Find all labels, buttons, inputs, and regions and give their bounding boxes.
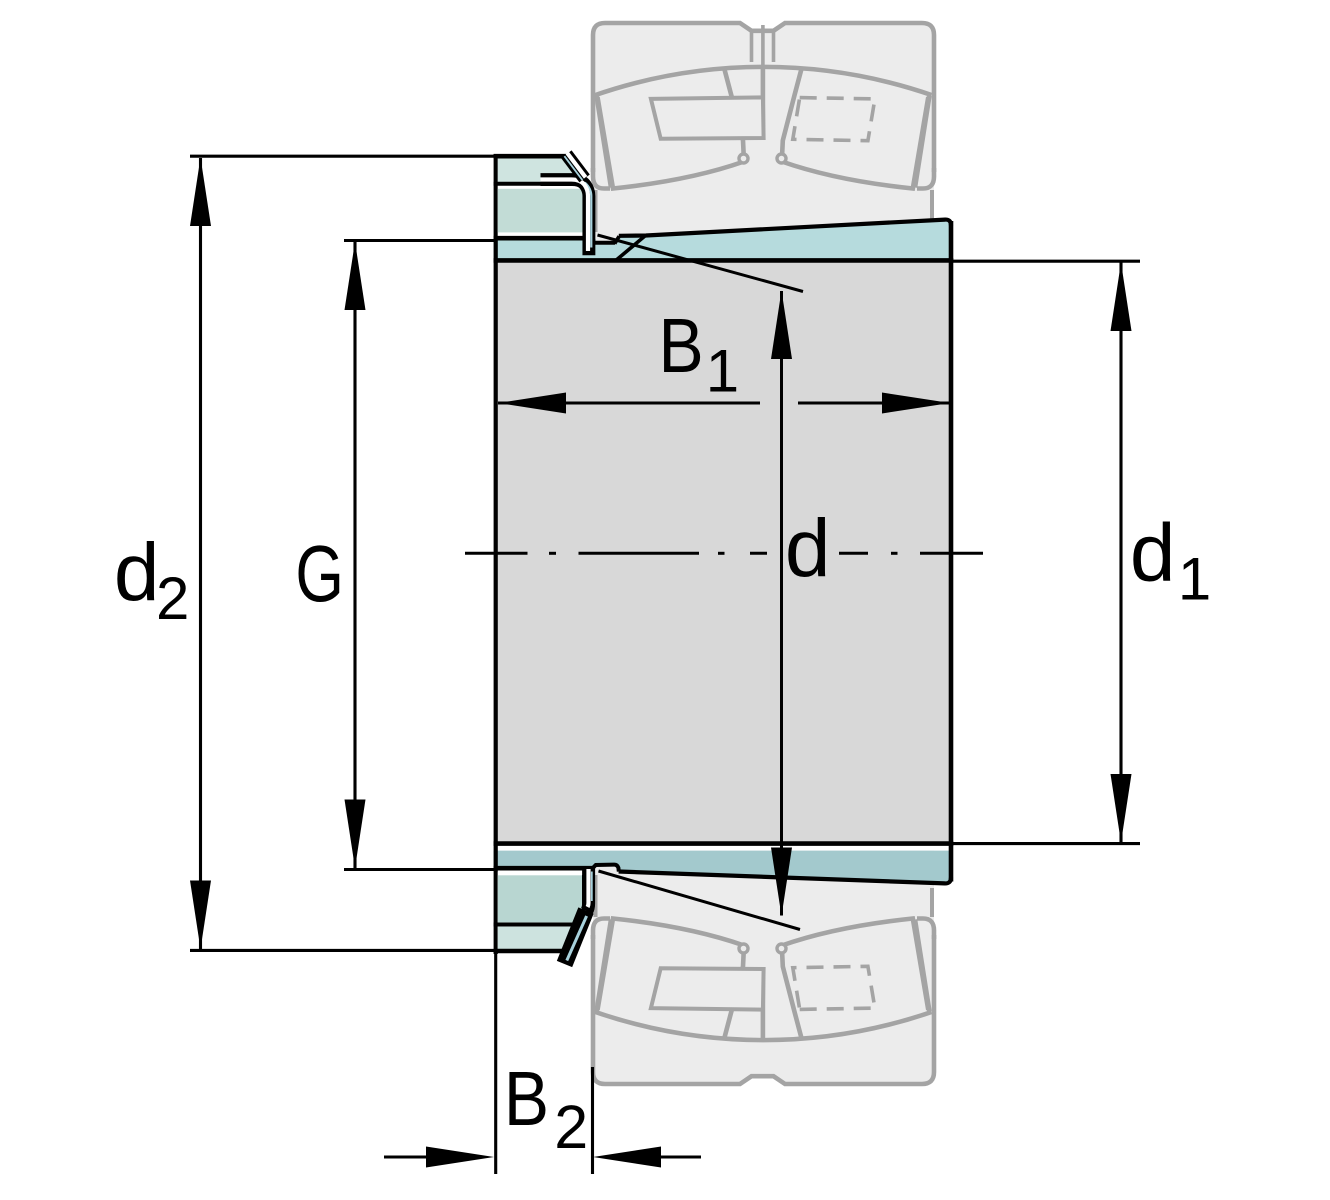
svg-text:d: d bbox=[114, 527, 160, 618]
svg-text:1: 1 bbox=[706, 338, 739, 405]
svg-text:d: d bbox=[785, 503, 831, 594]
svg-text:d: d bbox=[1130, 508, 1176, 599]
svg-text:B: B bbox=[504, 1056, 549, 1142]
svg-text:2: 2 bbox=[156, 565, 189, 632]
svg-text:B: B bbox=[659, 303, 704, 389]
svg-text:2: 2 bbox=[554, 1093, 588, 1161]
svg-text:G: G bbox=[295, 530, 344, 619]
svg-text:1: 1 bbox=[1178, 546, 1211, 613]
